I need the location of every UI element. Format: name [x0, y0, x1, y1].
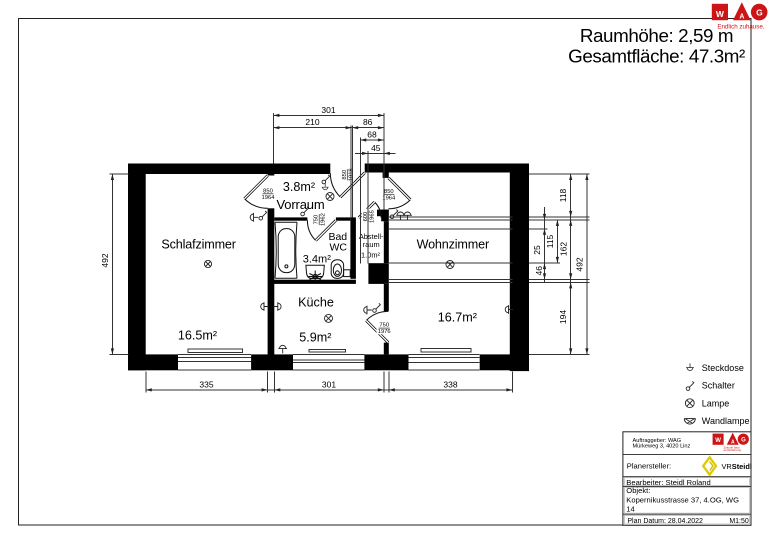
svg-text:1.0m²: 1.0m² [361, 251, 380, 260]
svg-text:G: G [741, 438, 746, 444]
svg-text:raum: raum [363, 240, 380, 249]
svg-text:M1:50: M1:50 [729, 518, 749, 525]
svg-text:850: 850 [263, 188, 273, 194]
svg-text:118: 118 [558, 188, 568, 202]
svg-text:16.5m²: 16.5m² [178, 329, 217, 343]
svg-text:750: 750 [379, 323, 389, 329]
svg-text:Gesamtfläche: 47.3m²: Gesamtfläche: 47.3m² [568, 46, 745, 67]
svg-text:3.8m²: 3.8m² [283, 180, 315, 194]
svg-text:1962: 1962 [320, 213, 326, 226]
svg-text:1976: 1976 [378, 329, 391, 335]
svg-text:5.9m²: 5.9m² [299, 331, 331, 345]
svg-text:WC: WC [329, 242, 347, 254]
svg-text:45: 45 [371, 143, 381, 153]
svg-text:68: 68 [367, 130, 377, 140]
svg-text:Raumhöhe: 2,59 m: Raumhöhe: 2,59 m [580, 25, 733, 46]
svg-text:Vorraum: Vorraum [276, 197, 324, 212]
svg-text:115: 115 [545, 234, 555, 248]
svg-text:Wandlampe: Wandlampe [702, 416, 750, 426]
svg-text:210: 210 [305, 117, 319, 127]
svg-text:auf Erfahrung: auf Erfahrung [724, 448, 742, 452]
svg-text:1964: 1964 [262, 195, 276, 201]
svg-text:16.7m²: 16.7m² [438, 311, 477, 325]
svg-text:Schalter: Schalter [702, 381, 735, 391]
svg-text:VRSteidl: VRSteidl [722, 462, 752, 471]
svg-text:Schlafzimmer: Schlafzimmer [161, 238, 235, 252]
svg-text:25: 25 [532, 245, 542, 255]
svg-text:G: G [756, 8, 763, 18]
svg-text:492: 492 [574, 257, 584, 271]
svg-text:750: 750 [314, 215, 320, 225]
svg-text:86: 86 [363, 117, 373, 127]
svg-text:Plan Datum: 28.04.2022: Plan Datum: 28.04.2022 [627, 518, 703, 525]
svg-text:14: 14 [626, 505, 634, 514]
svg-text:850: 850 [384, 189, 394, 195]
svg-text:Lampe: Lampe [702, 398, 730, 408]
svg-text:W: W [715, 438, 721, 444]
svg-text:194: 194 [558, 310, 568, 324]
svg-text:Objekt:: Objekt: [626, 486, 650, 495]
svg-text:301: 301 [321, 105, 335, 115]
svg-text:Steckdose: Steckdose [702, 363, 744, 373]
svg-text:46: 46 [534, 266, 544, 276]
svg-text:301: 301 [322, 379, 336, 389]
svg-text:335: 335 [199, 379, 213, 389]
svg-text:Küche: Küche [298, 296, 334, 310]
svg-text:338: 338 [443, 379, 457, 389]
svg-text:Planersteller:: Planersteller: [627, 461, 671, 470]
svg-text:Wohnzimmer: Wohnzimmer [417, 237, 489, 251]
svg-text:492: 492 [100, 253, 110, 267]
svg-text:Kopernikusstrasse 37, 4.OG, WG: Kopernikusstrasse 37, 4.OG, WG [626, 496, 739, 505]
svg-text:A: A [739, 14, 744, 21]
svg-text:Mürkeweg 3, 4020 Linz: Mürkeweg 3, 4020 Linz [633, 444, 691, 450]
svg-text:W: W [716, 9, 725, 19]
svg-text:1965: 1965 [369, 210, 375, 223]
svg-text:850: 850 [342, 170, 348, 180]
svg-text:162: 162 [559, 242, 569, 256]
svg-text:3.4m²: 3.4m² [303, 254, 331, 266]
